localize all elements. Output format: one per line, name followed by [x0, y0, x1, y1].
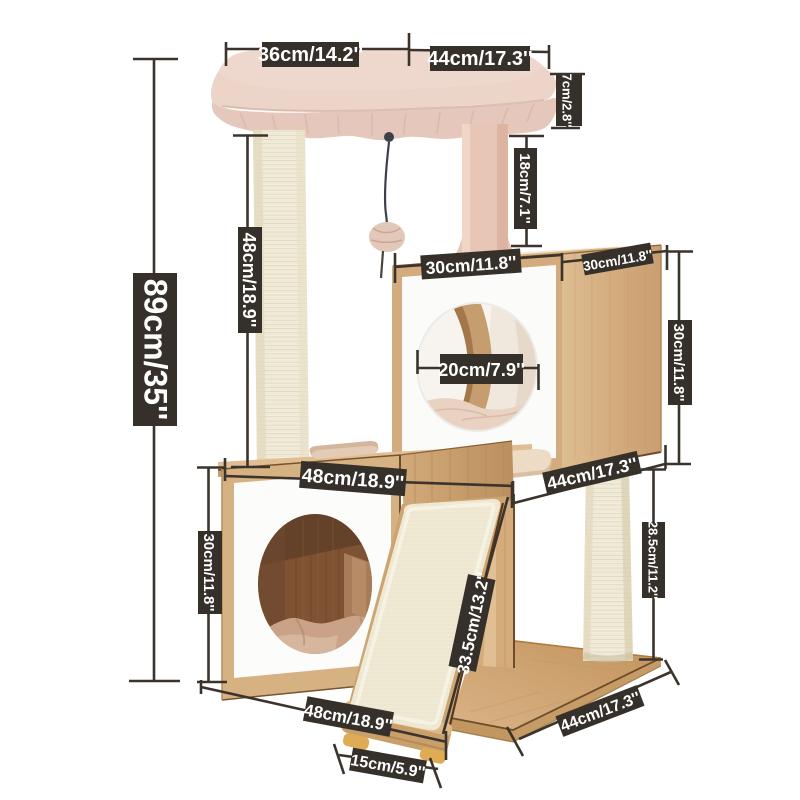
svg-text:48cm/18.9'': 48cm/18.9'' [239, 233, 259, 328]
svg-text:44cm/17.3'': 44cm/17.3'' [427, 48, 532, 70]
svg-text:7cm/2.8'': 7cm/2.8'' [560, 74, 575, 128]
svg-text:30cm/11.8'': 30cm/11.8'' [670, 323, 687, 401]
svg-text:30cm/11.8'': 30cm/11.8'' [200, 533, 217, 611]
svg-text:36cm/14.2'': 36cm/14.2'' [258, 44, 363, 66]
svg-text:28.5cm/11.2'': 28.5cm/11.2'' [646, 521, 661, 599]
svg-text:89cm/35'': 89cm/35'' [138, 279, 174, 421]
svg-text:20cm/7.9'': 20cm/7.9'' [438, 359, 525, 380]
svg-text:18cm/7.1'': 18cm/7.1'' [516, 153, 533, 224]
